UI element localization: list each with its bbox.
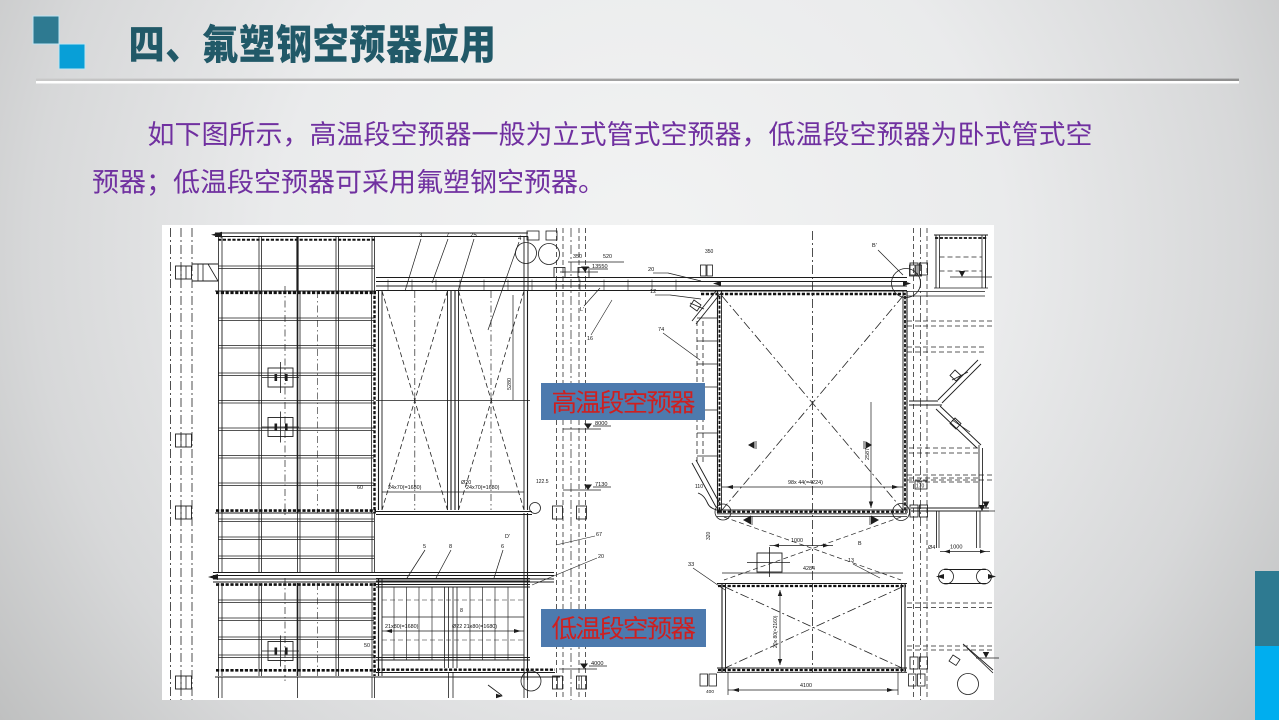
svg-text:24x70(=1680): 24x70(=1680) [388,485,422,491]
svg-text:122.5: 122.5 [536,479,549,485]
svg-text:5280: 5280 [507,378,513,390]
svg-text:50: 50 [364,643,370,649]
svg-text:520: 520 [603,254,612,260]
svg-text:170: 170 [916,484,925,490]
svg-text:350: 350 [573,254,582,260]
svg-text:1000: 1000 [791,538,803,544]
svg-text:20: 20 [598,554,604,560]
svg-text:74: 74 [658,327,664,333]
svg-text:L': L' [580,307,584,313]
svg-text:6: 6 [501,544,504,550]
svg-text:4100: 4100 [800,683,812,689]
svg-text:2587: 2587 [865,448,871,460]
svg-text:4284: 4284 [803,566,815,572]
svg-text:67: 67 [596,532,602,538]
svg-text:21x80(=1680): 21x80(=1680) [385,624,419,630]
svg-text:16: 16 [587,336,593,342]
svg-text:B: B [858,541,862,547]
svg-text:D': D' [505,534,510,540]
svg-text:8: 8 [460,608,463,614]
svg-text:13: 13 [848,558,854,564]
svg-text:Ø22 21x80(=1680): Ø22 21x80(=1680) [452,624,497,630]
svg-text:400: 400 [706,689,714,695]
svg-text:20: 20 [648,267,654,273]
svg-text:24x70(=1680): 24x70(=1680) [466,485,500,491]
svg-text:Ø4: Ø4 [928,545,935,551]
svg-text:98x 44(=4224): 98x 44(=4224) [788,480,823,486]
svg-text:320: 320 [706,531,712,540]
svg-text:12: 12 [650,289,656,295]
svg-text:350: 350 [705,249,714,255]
svg-text:1000: 1000 [950,545,962,551]
svg-text:33: 33 [688,562,694,568]
svg-text:110: 110 [695,484,703,490]
svg-text:5: 5 [423,544,426,550]
svg-text:60: 60 [357,485,363,491]
svg-text:8: 8 [449,544,452,550]
svg-text:B': B' [872,243,877,249]
svg-text:25: 25 [470,233,477,239]
svg-text:20x 80(=2160): 20x 80(=2160) [773,615,779,648]
